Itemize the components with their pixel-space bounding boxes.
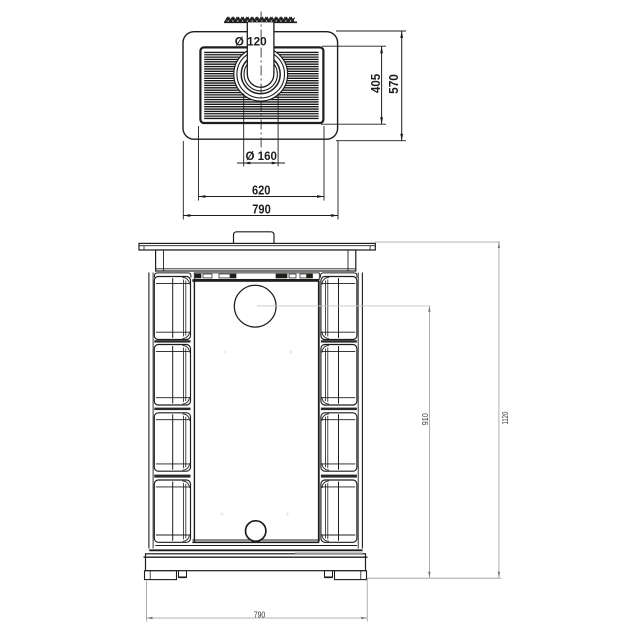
svg-text:Ø 120: Ø 120 [235, 35, 267, 49]
svg-text:405: 405 [368, 74, 383, 93]
svg-text:620: 620 [252, 182, 271, 197]
svg-text:570: 570 [386, 74, 401, 94]
svg-text:790: 790 [252, 201, 271, 216]
svg-text:1120: 1120 [500, 412, 510, 425]
svg-text:790: 790 [254, 609, 266, 619]
svg-text:Ø 160: Ø 160 [245, 149, 277, 163]
svg-text:910: 910 [420, 413, 430, 425]
